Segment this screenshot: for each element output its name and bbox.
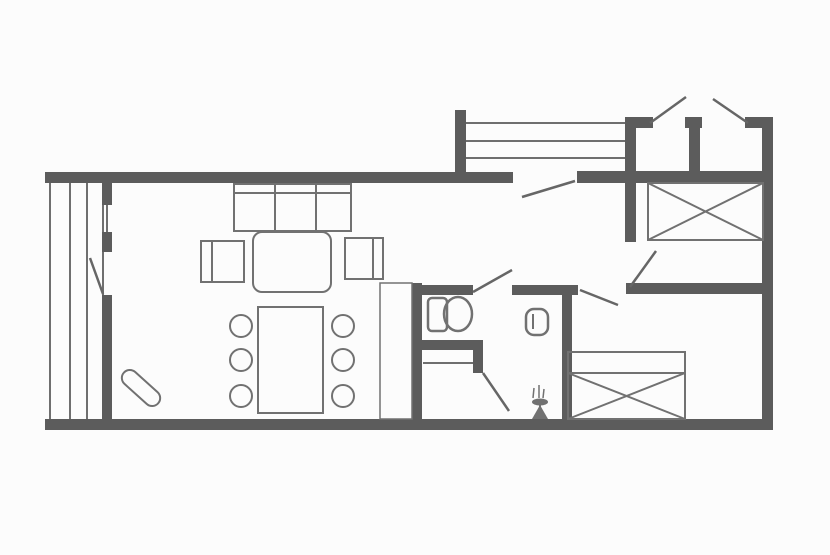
dining-chair: [332, 315, 354, 337]
bedroom1-door-leaf: [630, 251, 656, 287]
hall-top-wall: [577, 171, 773, 183]
sofa: [234, 184, 351, 231]
bath-top-wall-left: [422, 285, 473, 295]
shower-wall-horizontal: [422, 340, 483, 350]
sink-basin: [526, 309, 548, 335]
coffee-table: [253, 232, 331, 292]
bedroom2-door-leaf: [580, 290, 618, 305]
bed2-headboard: [568, 352, 685, 373]
plant-base-icon: [532, 405, 548, 419]
living-left-wall-upper: [102, 183, 112, 205]
annex-right-door-leaf: [713, 99, 748, 123]
living-left-wall-mid: [102, 232, 112, 252]
plant-sprig-icon: [543, 389, 544, 398]
porch-left-post: [455, 110, 466, 183]
dining-chair: [332, 349, 354, 371]
annex-left-door-leaf: [650, 97, 686, 123]
outer-top-wall: [45, 172, 513, 183]
plant-sprig-icon: [533, 388, 534, 398]
closet: [380, 283, 412, 419]
entry-door-leaf: [522, 181, 575, 197]
dining-chair: [230, 385, 252, 407]
bath-top-wall-right: [512, 285, 578, 295]
bathroom-door-leaf: [473, 270, 512, 292]
outer-right-wall: [762, 117, 773, 430]
bath-left-wall: [412, 283, 422, 419]
outer-bottom-wall: [45, 419, 773, 430]
floor-plan: [0, 0, 830, 555]
annex-divider-wall: [689, 125, 700, 177]
dining-chair: [230, 349, 252, 371]
dining-chair: [230, 315, 252, 337]
dining-chair: [332, 385, 354, 407]
living-left-wall-lower: [102, 295, 112, 419]
wood-stove: [119, 367, 164, 410]
shower-wall-vertical: [473, 350, 483, 373]
balcony-door-leaf: [90, 258, 103, 294]
bedrooms-divider-wall: [626, 283, 762, 294]
floor-plan-figure: [0, 0, 830, 555]
dining-table: [258, 307, 323, 413]
armchair-right: [345, 238, 383, 279]
shower-door-leaf: [483, 373, 509, 411]
bedroom1-left-wall: [625, 183, 636, 242]
armchair-left: [201, 241, 244, 282]
annex-top-wall-left: [625, 117, 653, 128]
